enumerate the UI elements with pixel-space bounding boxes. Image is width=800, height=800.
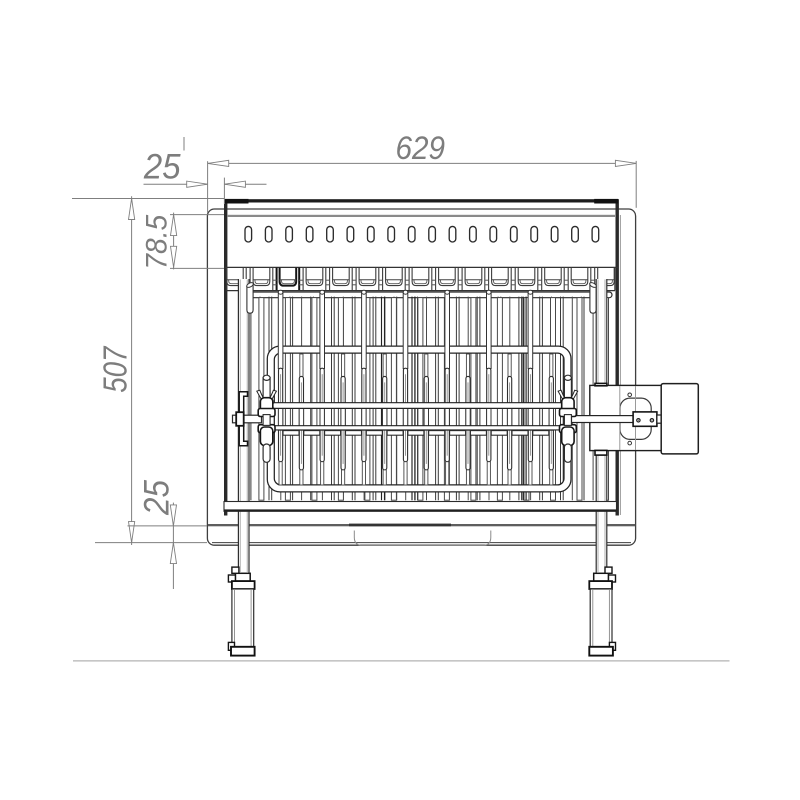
- svg-text:25: 25: [138, 480, 177, 516]
- svg-text:507: 507: [98, 345, 135, 392]
- svg-text:78.5: 78.5: [141, 215, 174, 270]
- svg-text:25: 25: [143, 147, 181, 186]
- svg-text:629: 629: [396, 130, 446, 166]
